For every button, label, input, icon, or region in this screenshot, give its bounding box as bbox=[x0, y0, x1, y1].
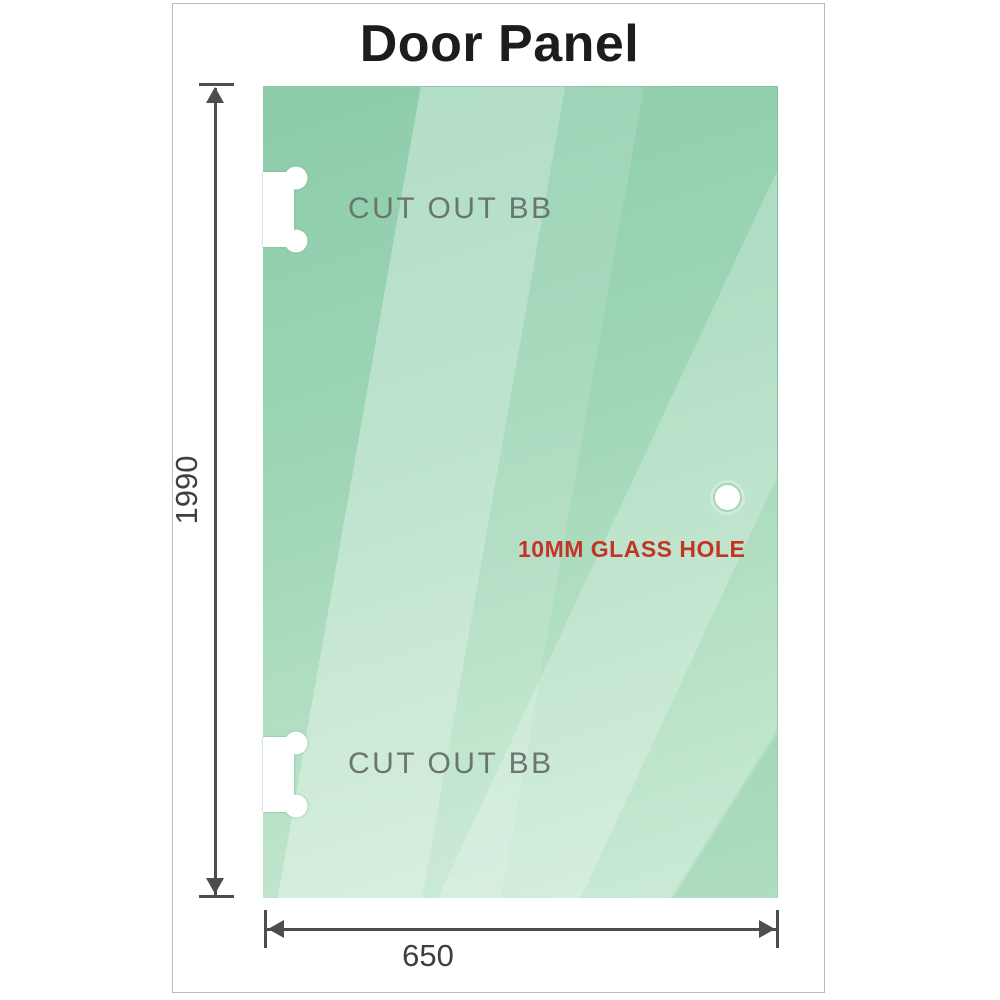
width-dimension-line bbox=[267, 928, 777, 931]
cutout-top-label: CUT OUT BB bbox=[348, 192, 554, 226]
arrow-right-icon bbox=[759, 920, 775, 938]
width-dimension-label: 650 bbox=[402, 938, 454, 974]
glass-hole-label: 10MM GLASS HOLE bbox=[518, 536, 745, 563]
height-dimension-label: 1990 bbox=[169, 456, 205, 525]
glass-hole bbox=[715, 485, 740, 510]
arrow-down-icon bbox=[206, 878, 224, 894]
arrow-up-icon bbox=[206, 87, 224, 103]
height-dimension-line bbox=[214, 88, 217, 896]
height-dimension-cap-bottom bbox=[199, 895, 234, 898]
hinge-cutout-shape-icon bbox=[263, 731, 309, 818]
width-dimension-cap-left bbox=[264, 910, 267, 948]
arrow-left-icon bbox=[268, 920, 284, 938]
diagram-title: Door Panel bbox=[172, 14, 827, 74]
door-panel-diagram: Door Panel CUT OUT BB CUT OUT BB 10MM GL… bbox=[0, 0, 1000, 1000]
cutout-bottom-label: CUT OUT BB bbox=[348, 747, 554, 781]
height-dimension-cap-top bbox=[199, 83, 234, 86]
hinge-cutout-bottom bbox=[263, 731, 309, 818]
hinge-cutout-shape-icon bbox=[263, 166, 309, 253]
hinge-cutout-top bbox=[263, 166, 309, 253]
width-dimension-cap-right bbox=[776, 910, 779, 948]
